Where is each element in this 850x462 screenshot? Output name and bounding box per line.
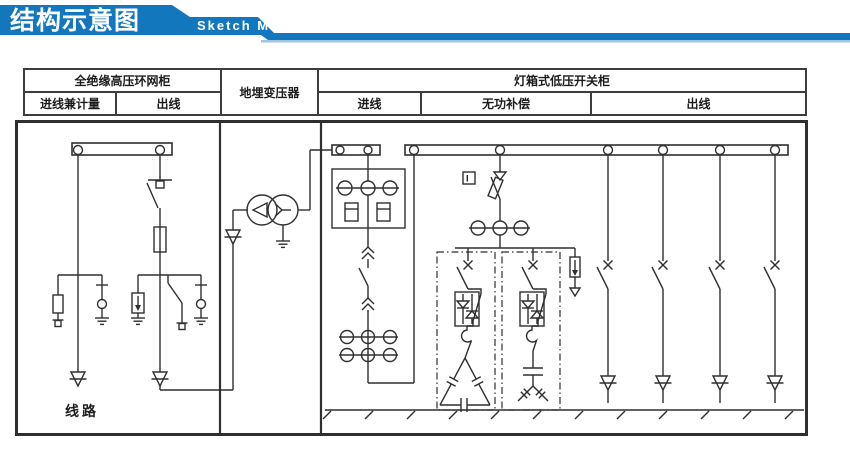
earthing-switch xyxy=(168,275,188,330)
fuse-switch xyxy=(488,177,503,199)
lv-surge-arrester xyxy=(570,248,580,296)
meter-icon xyxy=(345,203,358,221)
load-break-switch xyxy=(147,180,172,208)
table-cell-transformer: 地埋变压器 xyxy=(221,69,318,115)
page-title: 结构示意图 xyxy=(10,6,140,35)
cable-termination-icon xyxy=(225,230,242,244)
surge-arrester xyxy=(53,275,64,327)
hv-ring-main-unit: 线路 xyxy=(53,143,234,419)
ground-bus xyxy=(323,410,804,419)
current-transformers xyxy=(469,221,530,235)
line-label: 线路 xyxy=(65,403,99,419)
drawout-breaker xyxy=(359,247,374,310)
lv-incoming-metering xyxy=(332,145,414,383)
table-cell-lv-compensation: 无功补偿 xyxy=(421,92,591,115)
diagram-border xyxy=(17,122,807,435)
buried-transformer xyxy=(225,150,333,390)
thyristor-module xyxy=(455,292,479,326)
page-subtitle: Sketch Map xyxy=(197,18,289,33)
meter-i-label: I xyxy=(466,174,469,185)
single-line-diagram: 线路 xyxy=(15,120,810,438)
lv-switchgear: I xyxy=(323,145,804,419)
cabinet-header-table: 全绝缘高压环网柜 地埋变压器 灯箱式低压开关柜 进线兼计量 出线 进线 无功补偿… xyxy=(23,68,807,116)
lv-main-busbar xyxy=(405,145,788,155)
table-cell-lv-cabinet: 灯箱式低压开关柜 xyxy=(318,69,806,92)
title-banner: 结构示意图 Sketch Map xyxy=(0,0,850,46)
hv-busbar xyxy=(72,143,172,155)
delta-winding-icon xyxy=(253,203,267,217)
sketch-map-page: 结构示意图 Sketch Map 全绝缘高压环网柜 地埋变压器 灯箱式低压开关柜… xyxy=(0,0,850,462)
table-cell-hv-outgoing: 出线 xyxy=(116,92,221,115)
meter-icon xyxy=(377,203,390,221)
capacitor-bank-delta xyxy=(437,248,495,412)
reactor-icon xyxy=(527,326,537,351)
voltage-sensor xyxy=(194,275,208,324)
table-cell-lv-incoming: 进线 xyxy=(318,92,421,115)
table-cell-hv-incoming: 进线兼计量 xyxy=(24,92,116,115)
transformer-symbol xyxy=(247,195,298,225)
surge-arrester xyxy=(131,275,145,324)
current-transformers xyxy=(339,310,398,383)
compensation-branch: I xyxy=(437,154,580,412)
thyristor-module xyxy=(520,292,544,326)
cable-termination-icon xyxy=(70,372,87,386)
table-cell-lv-outgoing: 出线 xyxy=(591,92,806,115)
hv-incoming-feeder: 线路 xyxy=(53,155,110,419)
hv-outgoing-feeder xyxy=(131,155,233,390)
ground-icon xyxy=(276,241,290,247)
capacitor-bank-wye xyxy=(502,248,560,410)
voltage-sensor xyxy=(95,275,109,324)
cable-termination-icon xyxy=(152,372,169,386)
banner-underline xyxy=(261,40,850,43)
meter-i-box xyxy=(463,172,475,184)
table-cell-hv-cabinet: 全绝缘高压环网柜 xyxy=(24,69,221,92)
lv-outgoing-feeders xyxy=(597,154,784,403)
reactor-icon xyxy=(462,326,472,358)
